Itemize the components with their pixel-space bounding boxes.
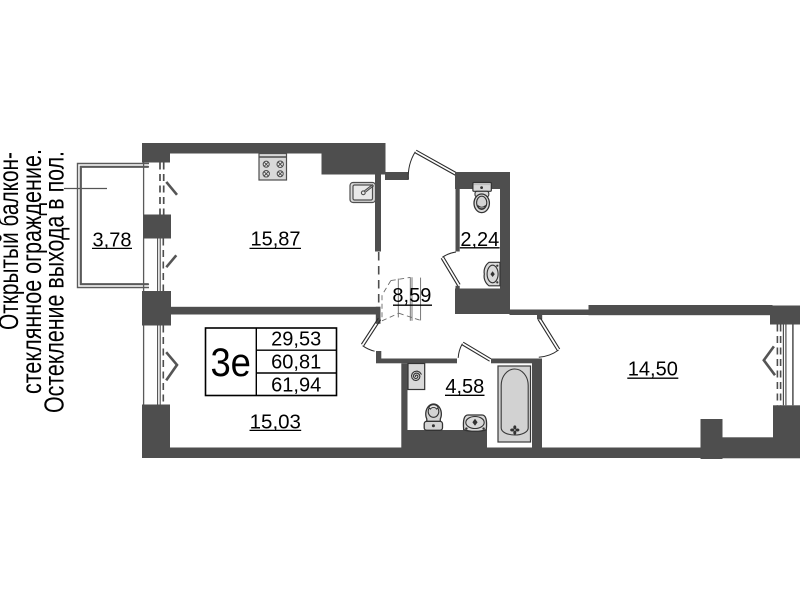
svg-text:14,50: 14,50 [628, 358, 678, 380]
svg-text:Остекление выхода в пол.: Остекление выхода в пол. [39, 151, 70, 413]
svg-text:60,81: 60,81 [271, 352, 321, 374]
svg-text:8,59: 8,59 [392, 285, 431, 307]
svg-text:4,58: 4,58 [445, 376, 484, 398]
svg-text:15,87: 15,87 [250, 229, 300, 251]
svg-text:61,94: 61,94 [271, 375, 321, 397]
svg-text:29,53: 29,53 [271, 329, 321, 351]
svg-text:3е: 3е [210, 341, 251, 385]
